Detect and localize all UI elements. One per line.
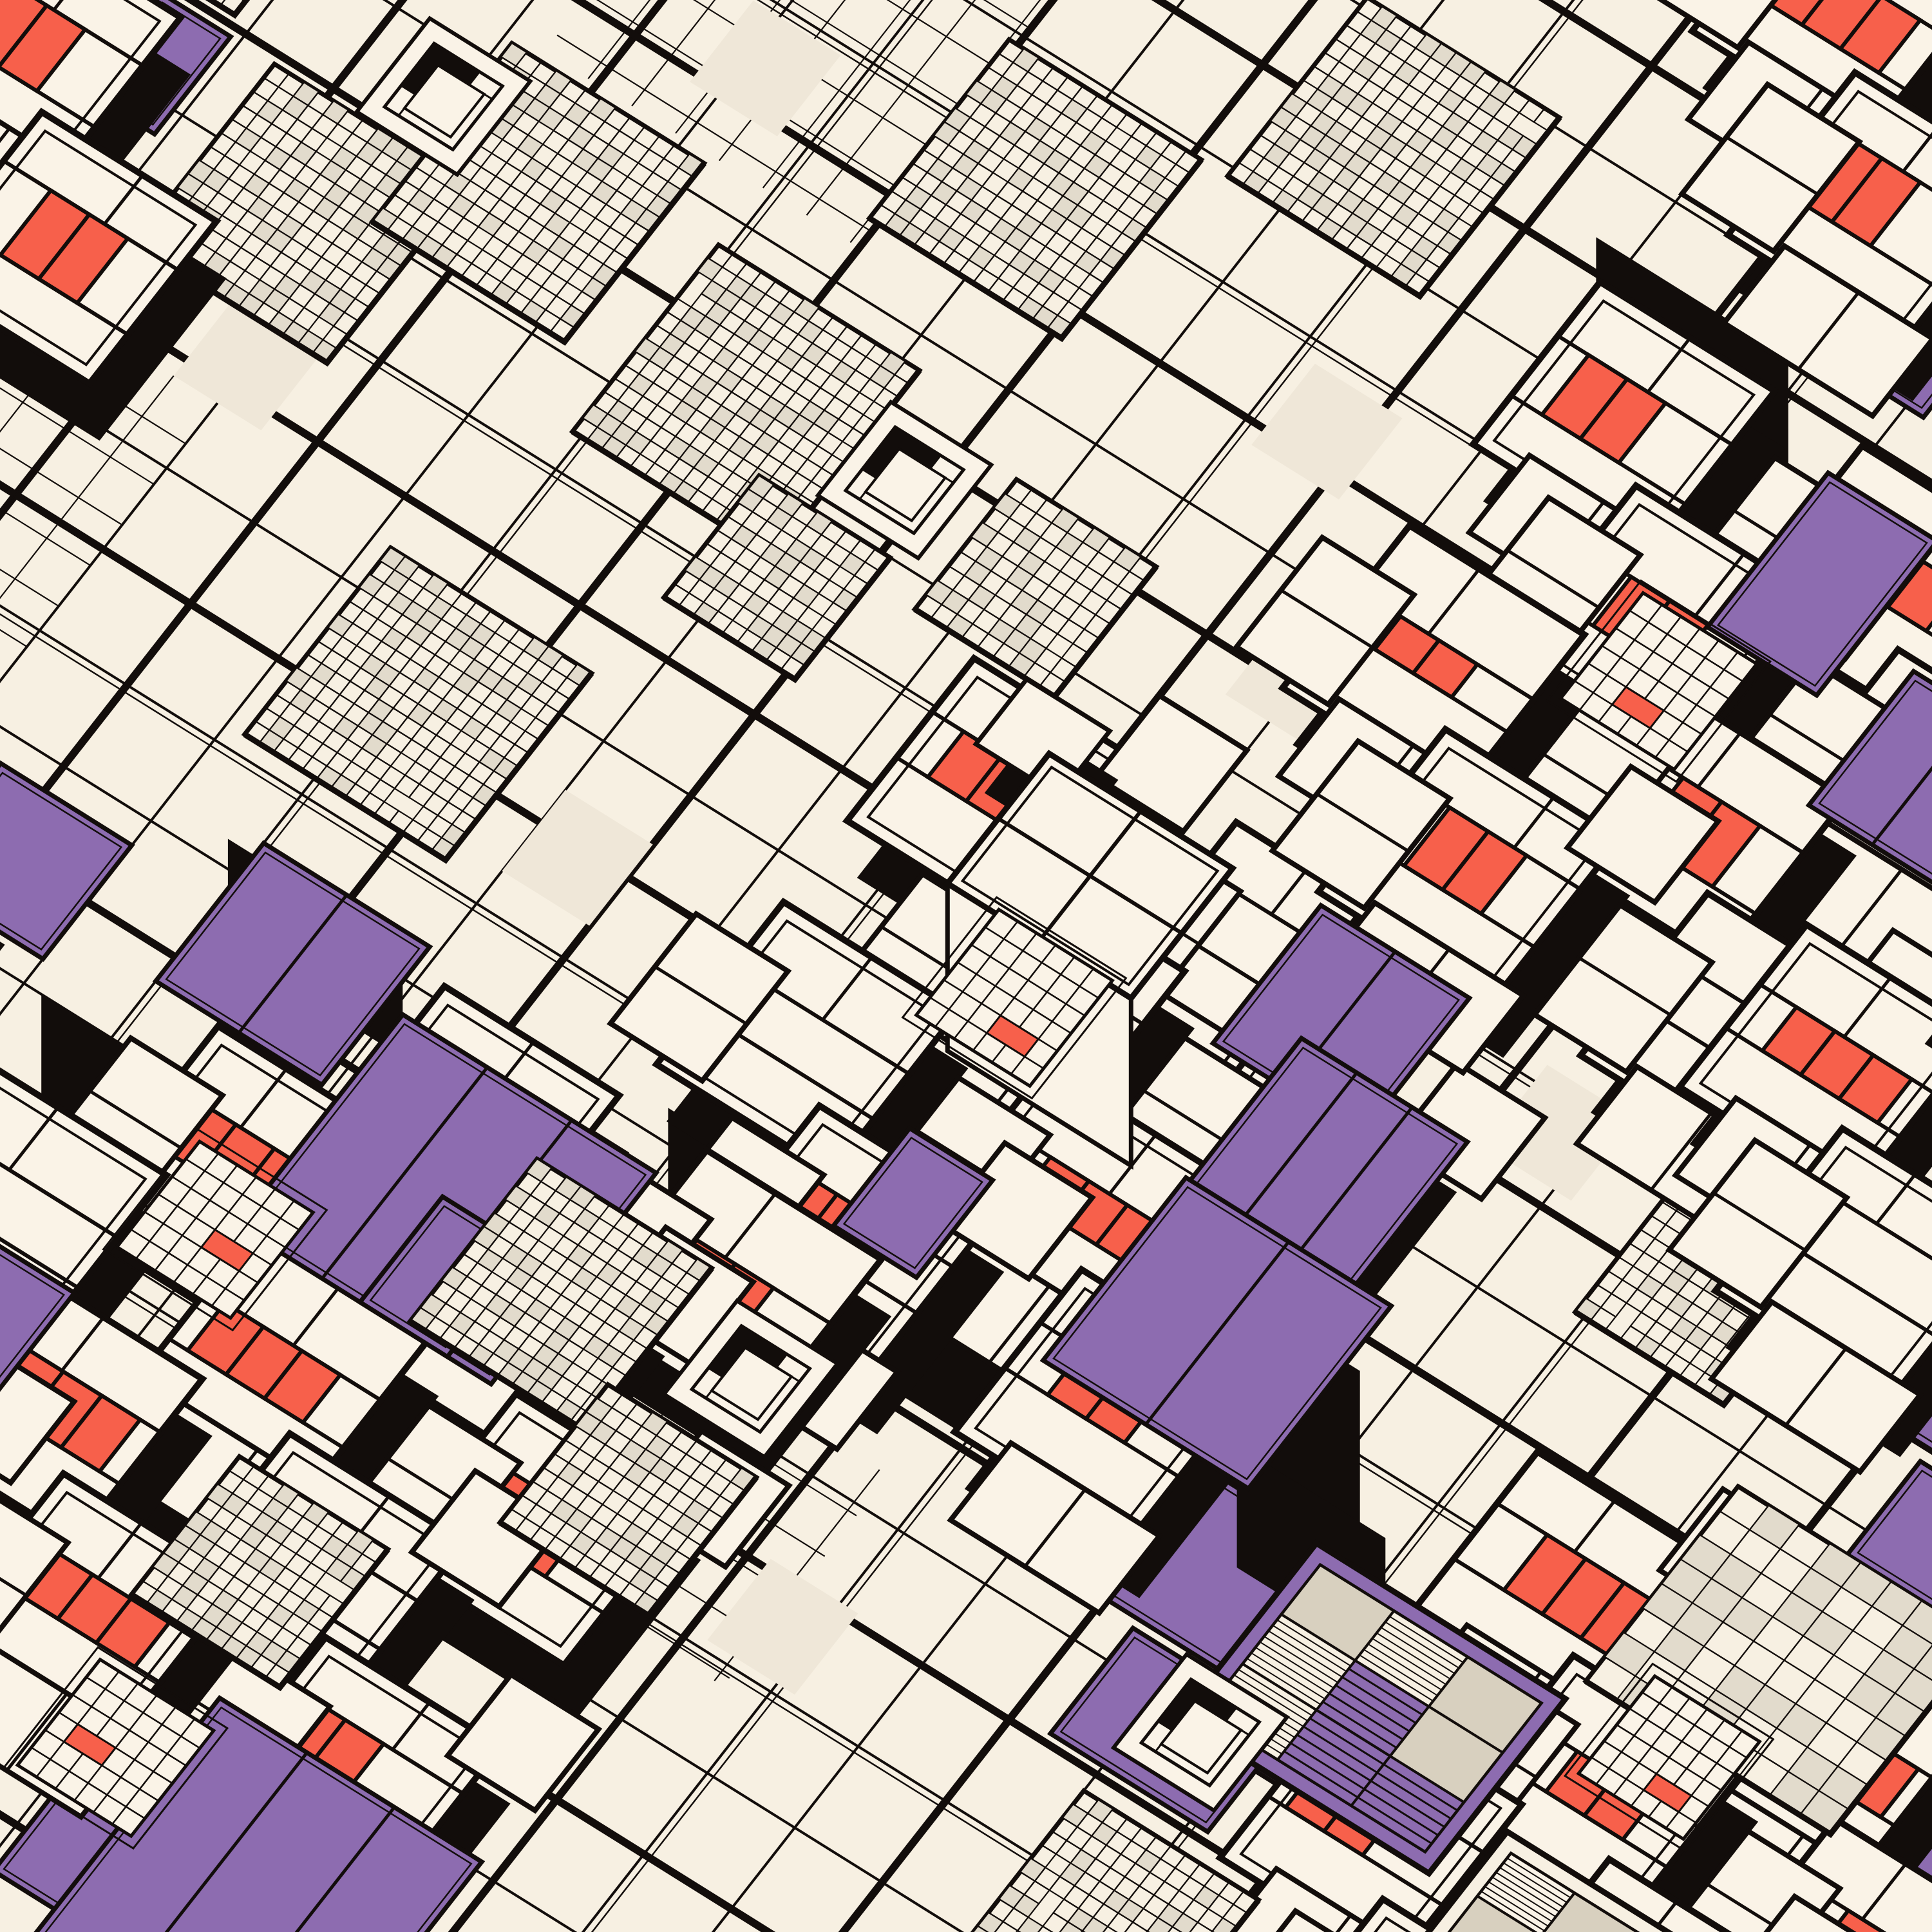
artwork-canvas bbox=[0, 0, 1932, 1932]
generative-artwork bbox=[0, 0, 1932, 1932]
